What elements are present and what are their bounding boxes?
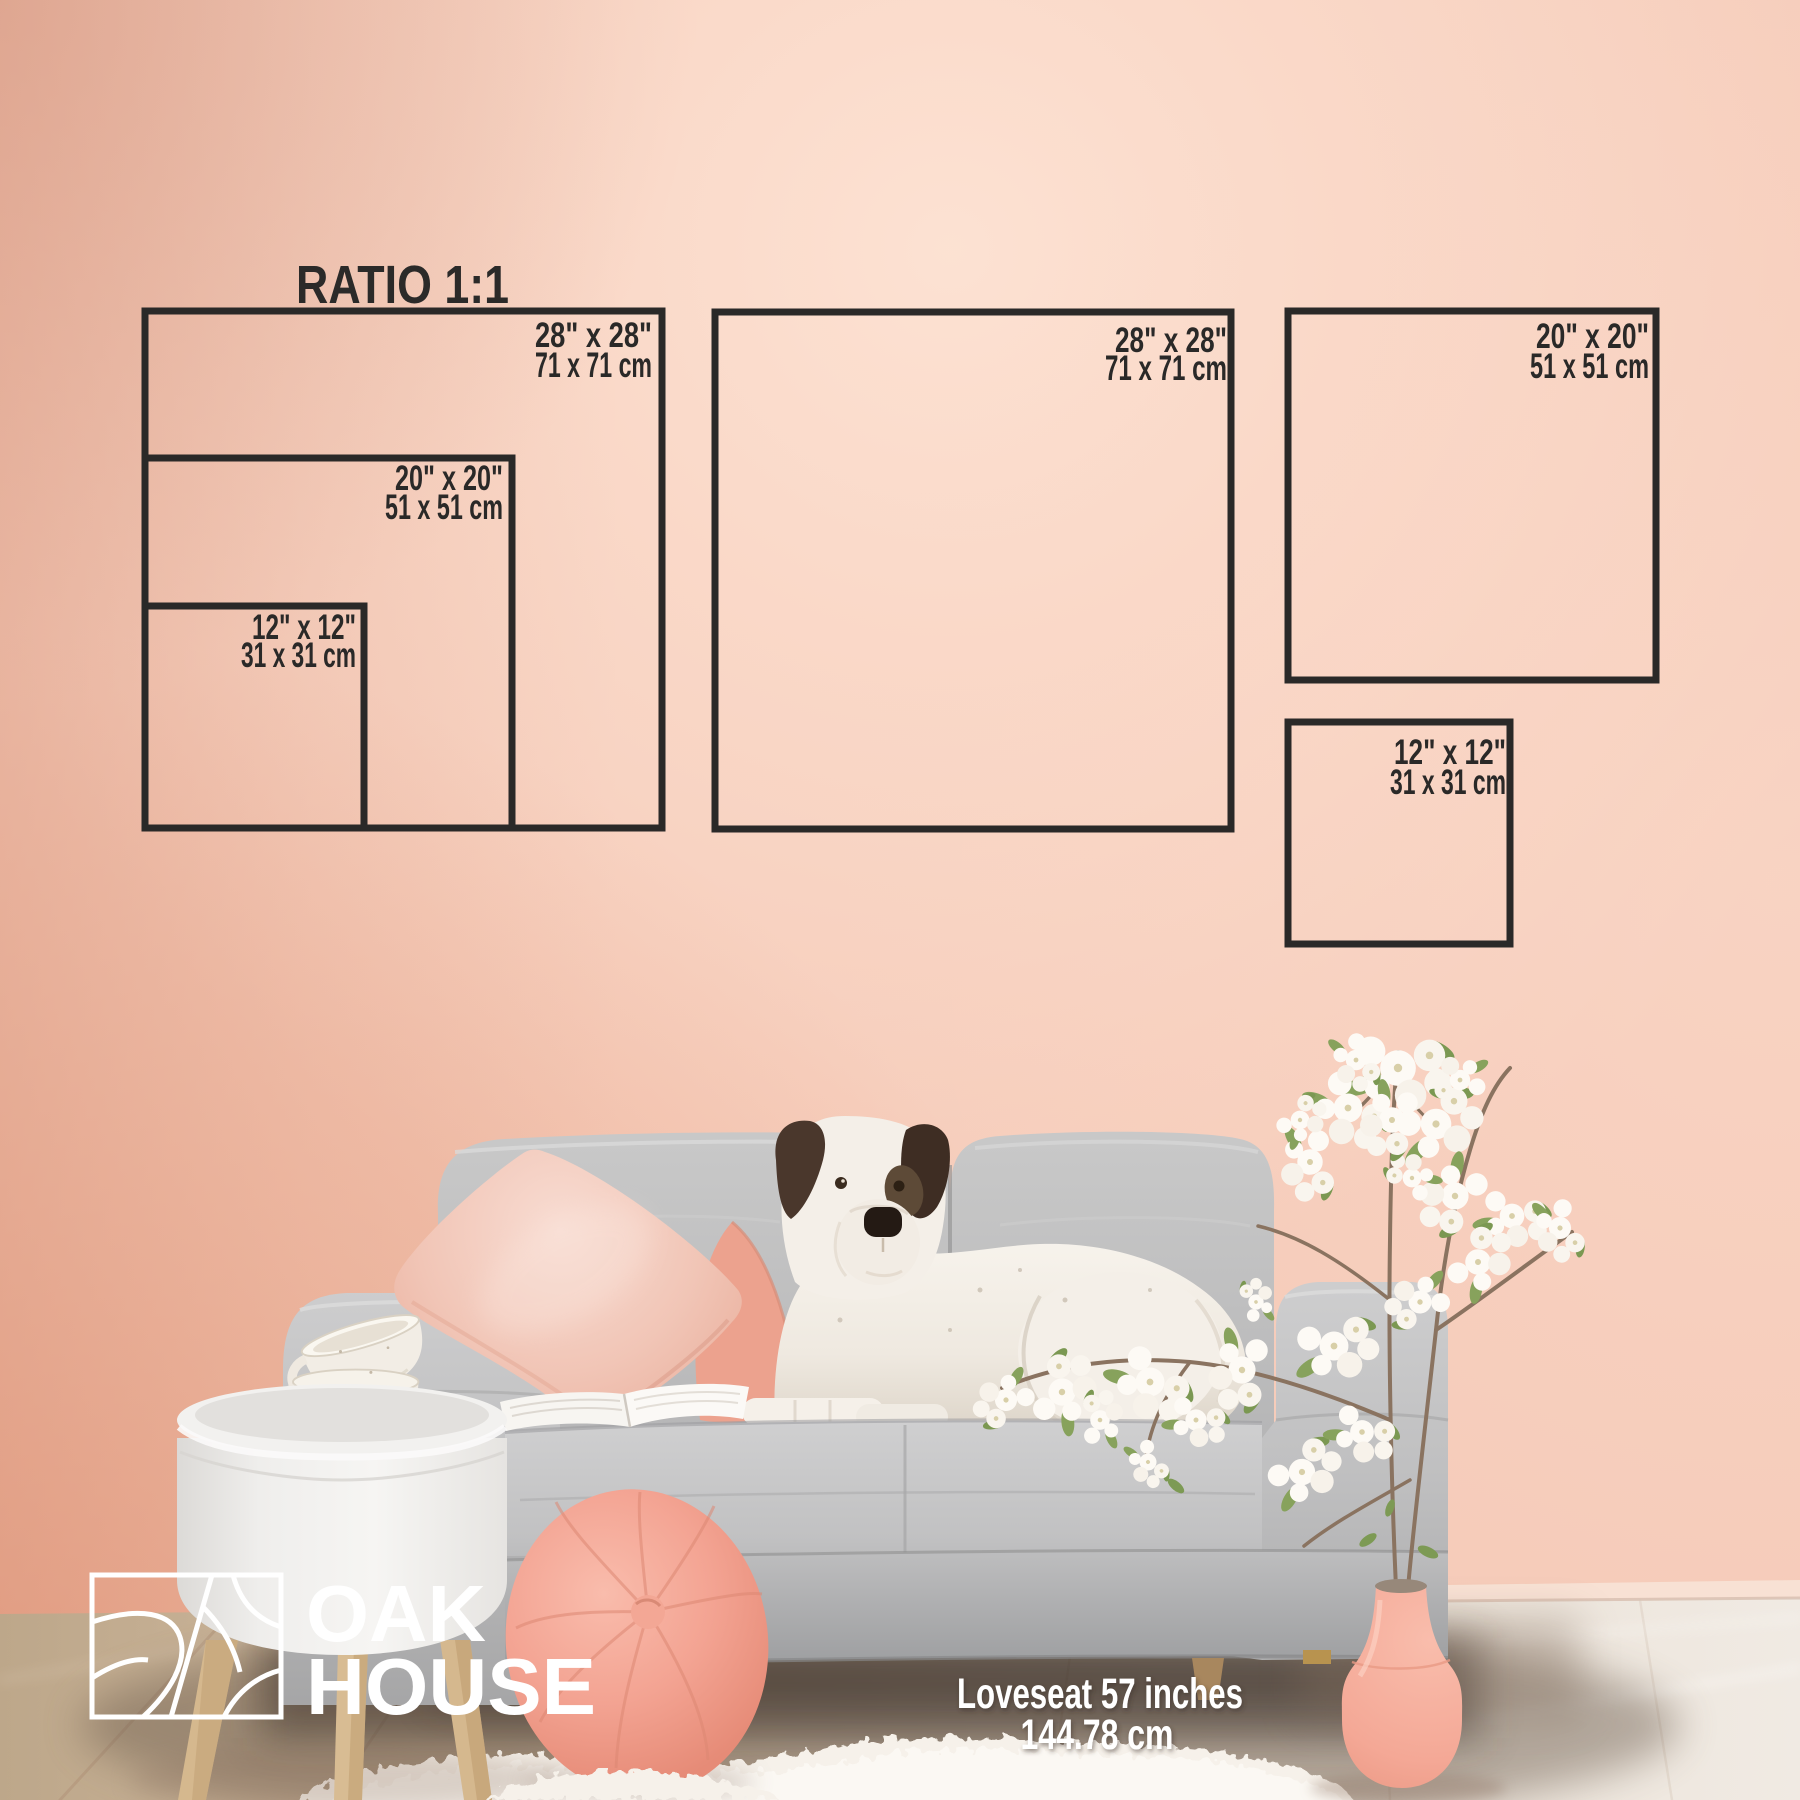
svg-text:HOUSE: HOUSE — [306, 1642, 596, 1731]
svg-text:31 x 31 cm: 31 x 31 cm — [241, 636, 356, 675]
svg-text:144.78 cm: 144.78 cm — [1021, 1711, 1174, 1759]
svg-text:71 x 71 cm: 71 x 71 cm — [1105, 349, 1227, 388]
svg-text:51 x 51 cm: 51 x 51 cm — [1530, 347, 1649, 386]
svg-text:51 x 51 cm: 51 x 51 cm — [385, 488, 503, 527]
svg-text:71 x 71 cm: 71 x 71 cm — [535, 346, 652, 385]
svg-text:RATIO 1:1: RATIO 1:1 — [296, 255, 509, 315]
svg-text:31 x 31 cm: 31 x 31 cm — [1390, 763, 1506, 802]
